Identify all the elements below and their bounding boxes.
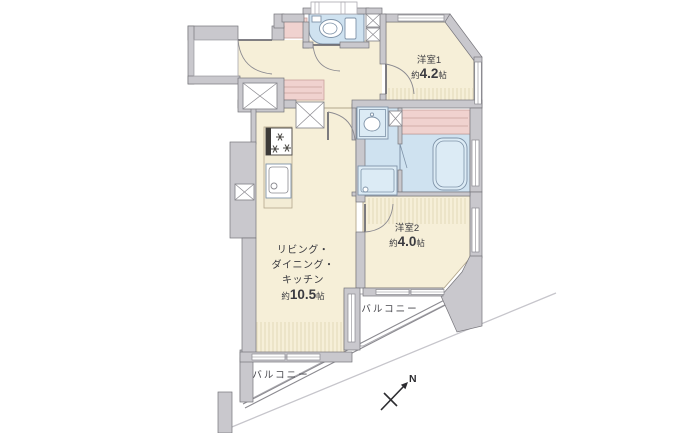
western1-closet bbox=[400, 110, 470, 134]
pipe-space-icon bbox=[366, 14, 380, 41]
floor-plan: 洋室1 約4.2帖 洋室2 約4.0帖 リビング・ ダイニング・ キッチン 約1… bbox=[0, 0, 700, 433]
north-label: N bbox=[409, 373, 417, 385]
north-arrow-icon bbox=[381, 382, 408, 410]
ldk-label-1: リビング・ bbox=[277, 243, 330, 256]
washbasin-icon bbox=[357, 107, 388, 139]
floor-plan-page: 洋室1 約4.2帖 洋室2 約4.0帖 リビング・ ダイニング・ キッチン 約1… bbox=[0, 0, 700, 433]
storage-box-icon bbox=[296, 102, 324, 128]
balcony-right-label: バルコニー bbox=[361, 304, 418, 315]
western1-label: 洋室1 bbox=[417, 54, 441, 66]
ldk-label-2: ダイニング・ bbox=[272, 258, 335, 271]
western2-label: 洋室2 bbox=[395, 222, 419, 234]
hall-closet bbox=[282, 80, 324, 100]
meter-box-icon bbox=[243, 83, 277, 109]
kitchen-sink-icon bbox=[266, 164, 291, 198]
washing-machine-icon bbox=[358, 166, 397, 195]
balcony-left-label: バルコニー bbox=[252, 370, 309, 381]
duct-box bbox=[311, 2, 357, 14]
entrance-alcove bbox=[194, 40, 238, 76]
ldk-label-3: キッチン bbox=[282, 274, 324, 286]
